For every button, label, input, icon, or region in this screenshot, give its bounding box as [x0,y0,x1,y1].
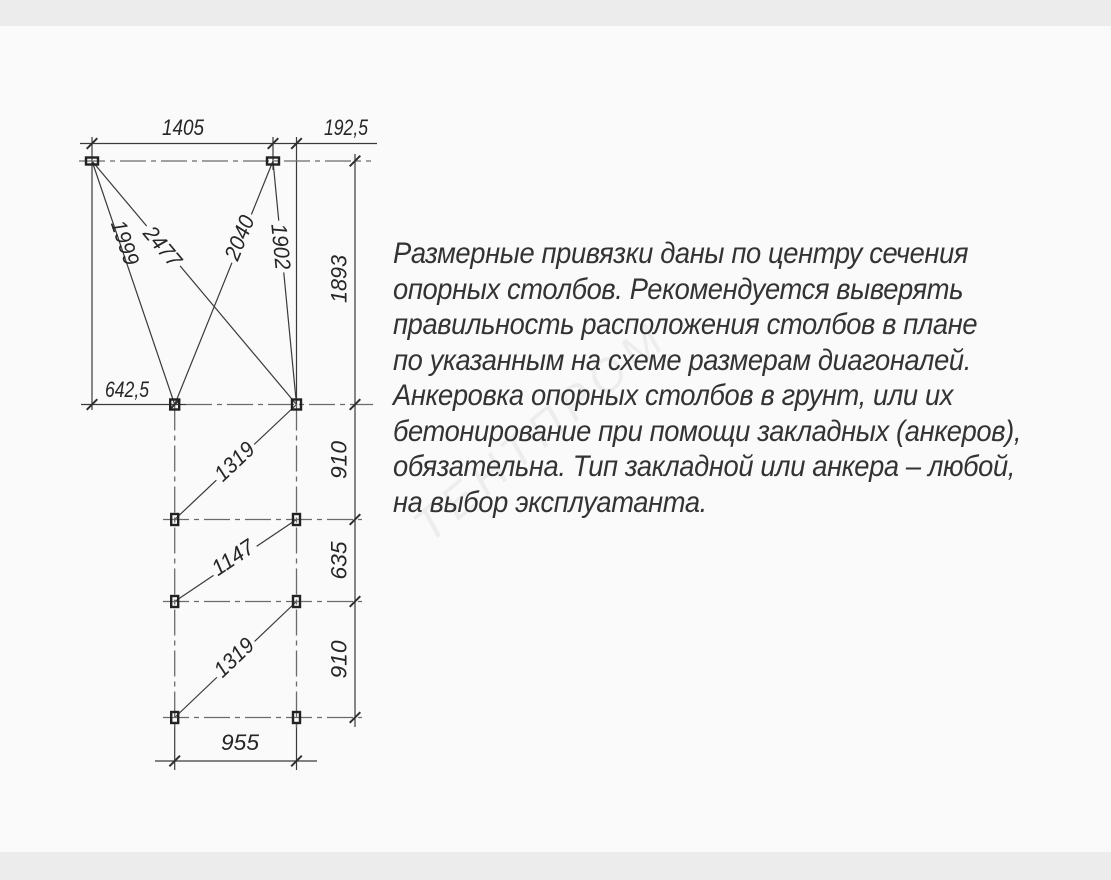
svg-text:1893: 1893 [327,254,352,303]
svg-text:192,5: 192,5 [324,115,369,140]
svg-text:635: 635 [327,541,352,580]
svg-text:2040: 2040 [219,211,260,265]
svg-text:1902: 1902 [266,222,295,270]
svg-text:910: 910 [327,440,352,479]
svg-text:1999: 1999 [106,217,144,269]
svg-text:642,5: 642,5 [105,377,150,402]
svg-text:1405: 1405 [162,115,205,140]
svg-text:910: 910 [327,640,352,679]
svg-text:955: 955 [221,730,260,755]
